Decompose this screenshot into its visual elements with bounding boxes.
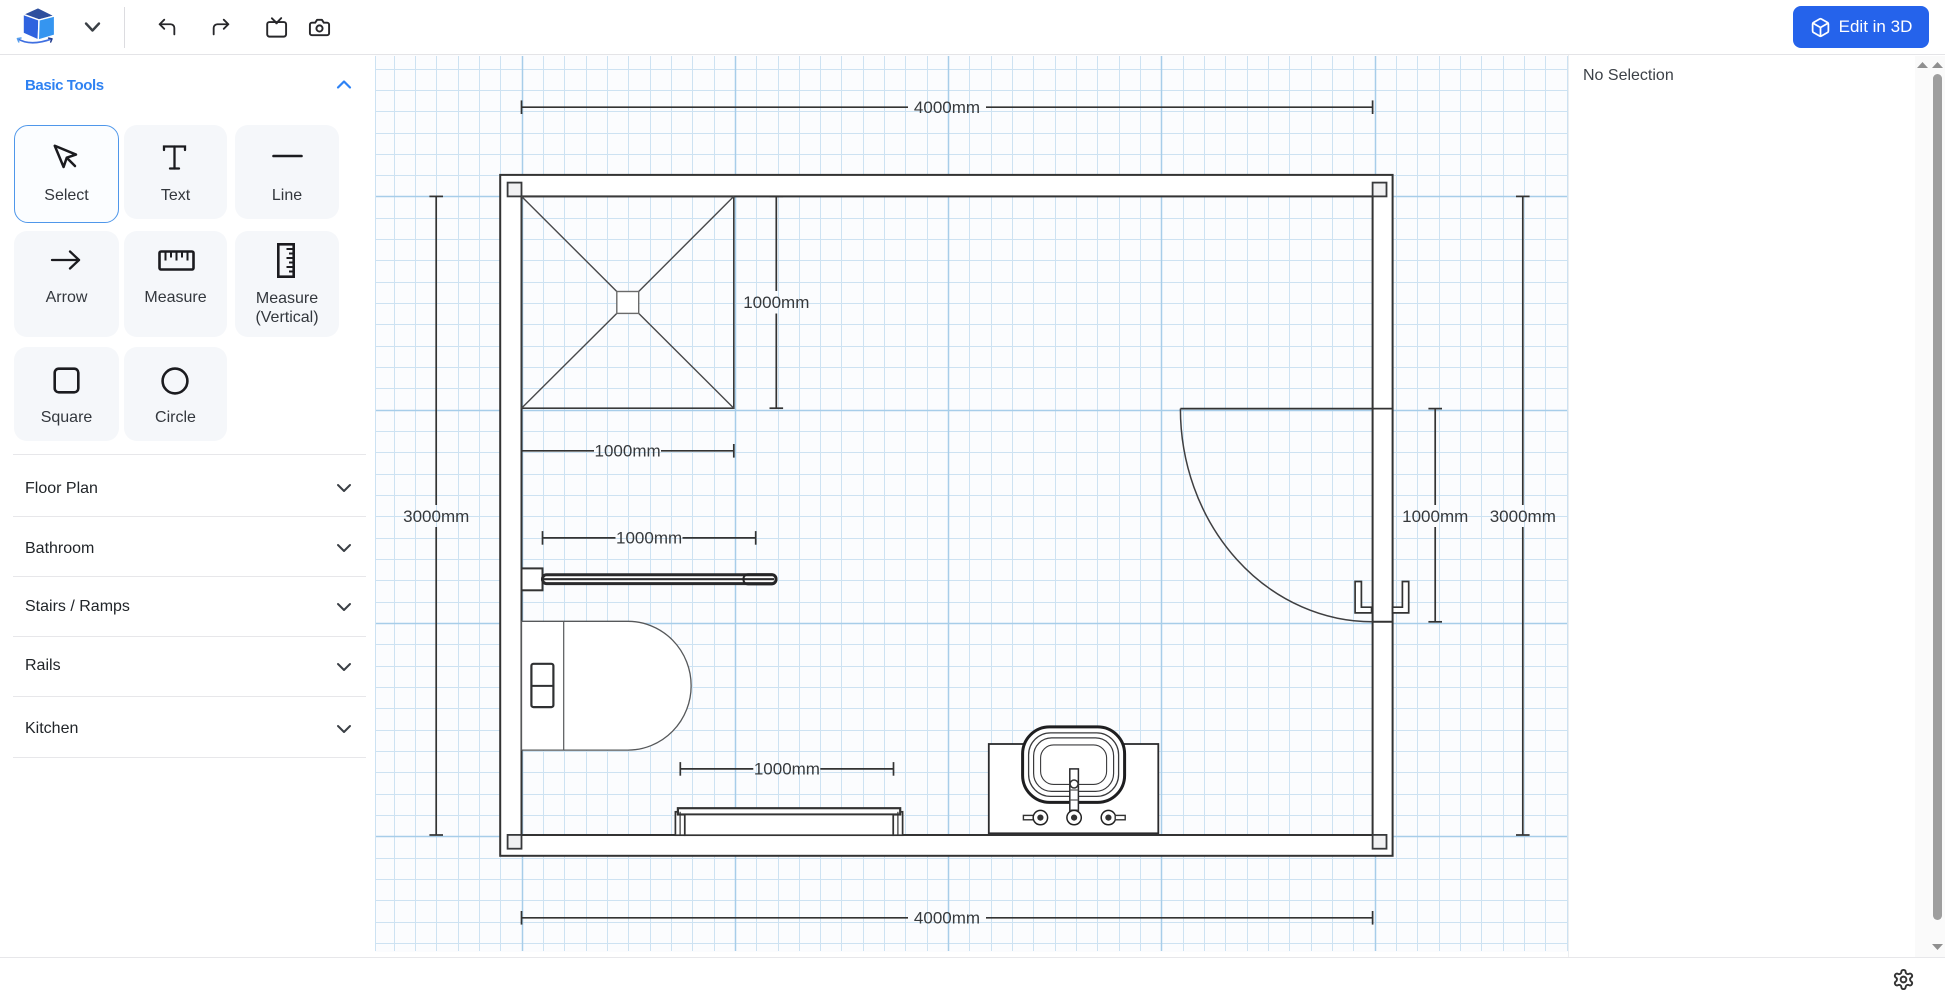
svg-text:3000mm: 3000mm: [403, 507, 469, 526]
svg-text:4000mm: 4000mm: [914, 98, 980, 117]
svg-text:3000mm: 3000mm: [1490, 507, 1556, 526]
svg-text:1000mm: 1000mm: [754, 760, 820, 779]
svg-text:1000mm: 1000mm: [595, 442, 661, 461]
svg-text:4000mm: 4000mm: [914, 909, 980, 928]
svg-text:1000mm: 1000mm: [616, 529, 682, 548]
svg-text:1000mm: 1000mm: [1402, 507, 1468, 526]
svg-text:1000mm: 1000mm: [743, 293, 809, 312]
